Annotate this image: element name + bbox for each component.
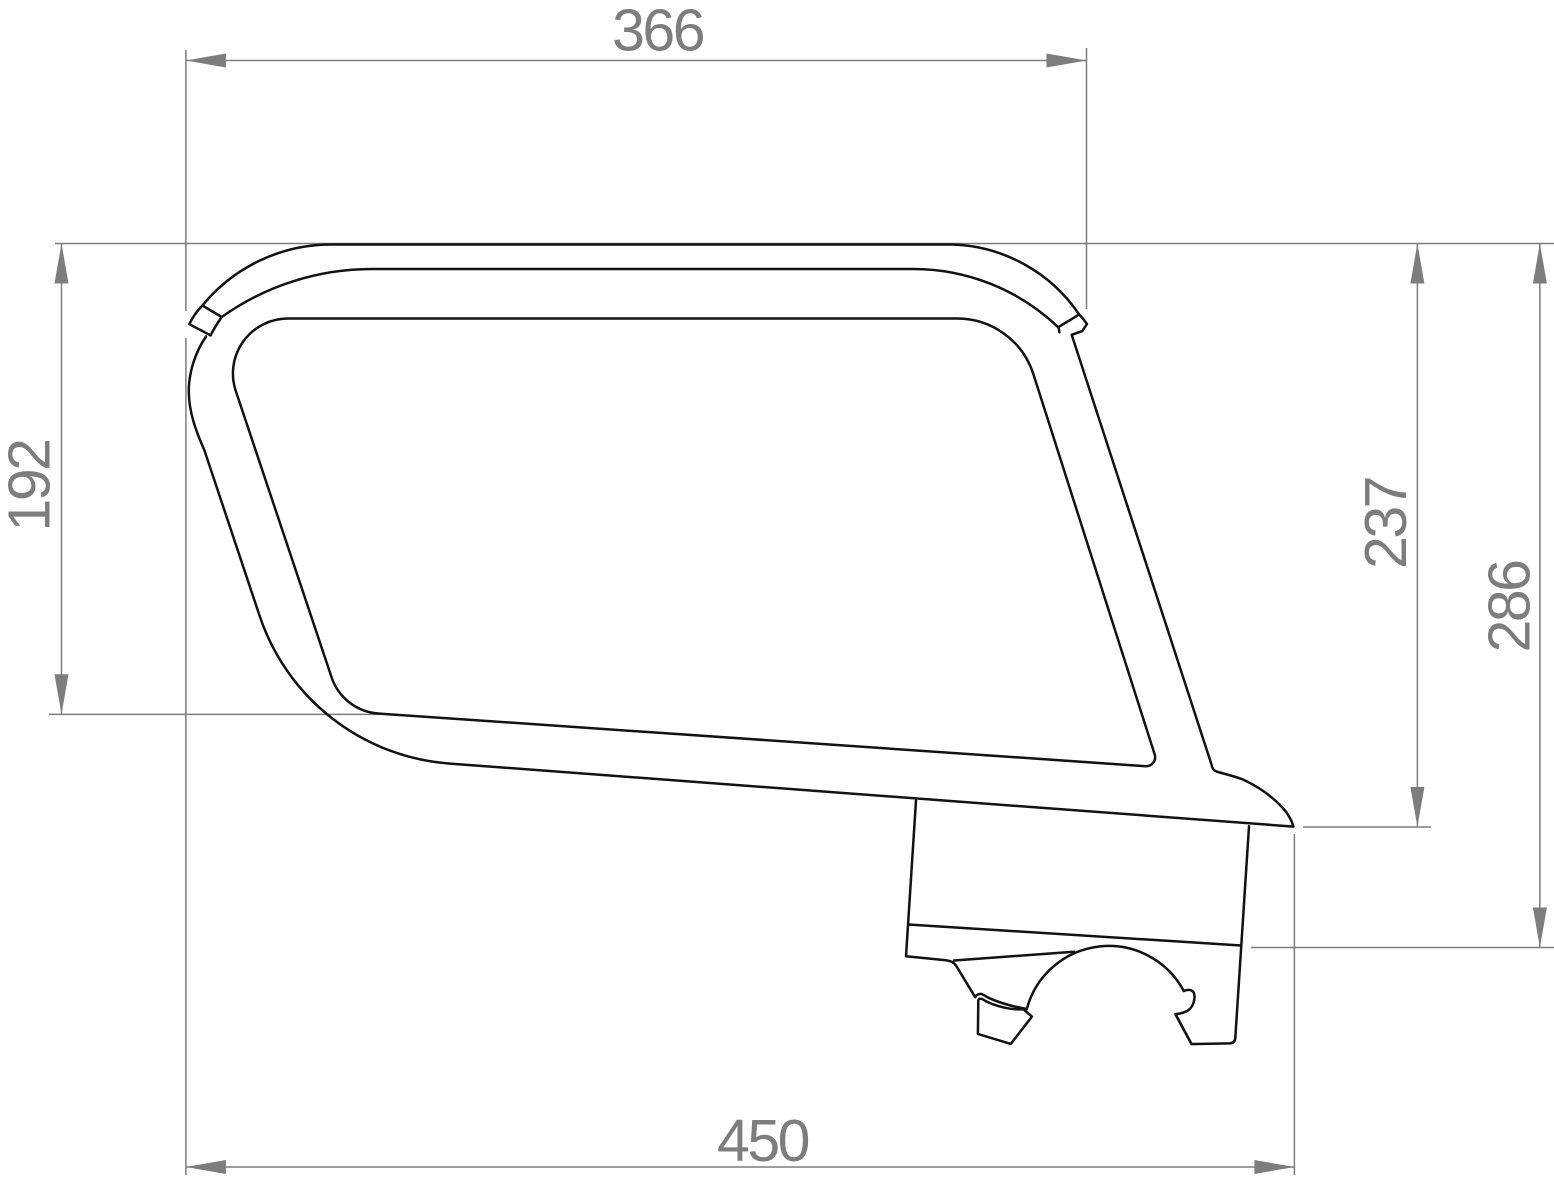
svg-text:286: 286 [1476, 561, 1542, 653]
svg-text:450: 450 [717, 1108, 809, 1174]
svg-text:237: 237 [1353, 478, 1419, 569]
svg-text:192: 192 [0, 441, 63, 532]
svg-text:366: 366 [612, 0, 704, 64]
